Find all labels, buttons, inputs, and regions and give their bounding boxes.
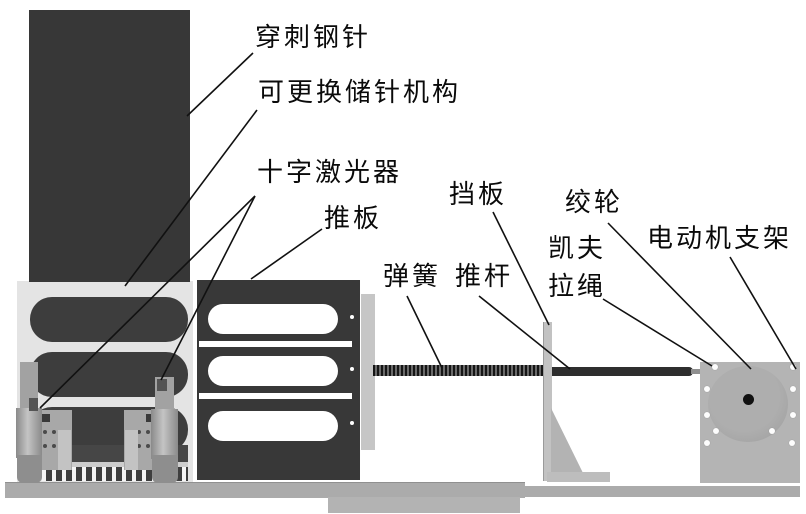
figure-canvas: 穿刺钢针 可更换储针机构 十字激光器 推板 挡板 弹簧 推杆 绞轮 凯夫 拉绳 … (0, 0, 806, 514)
label-spring: 弹簧 (383, 264, 441, 290)
label-push-rod: 推杆 (455, 264, 513, 290)
label-kevlar-line1: 凯夫 (548, 230, 606, 268)
label-winch: 绞轮 (565, 190, 623, 216)
leader-spring (407, 296, 442, 368)
leader-laser-left (40, 196, 255, 408)
label-motor-bracket: 电动机支架 (647, 226, 792, 252)
label-puncture-needle: 穿刺钢针 (255, 25, 371, 51)
label-kevlar-rope: 凯夫 拉绳 (548, 230, 606, 306)
leader-motor-bracket (730, 257, 796, 369)
leader-push-plate (251, 229, 322, 279)
leader-laser-right (161, 196, 255, 380)
label-baffle: 挡板 (449, 182, 507, 208)
label-cross-laser: 十字激光器 (257, 160, 402, 186)
label-kevlar-line2: 拉绳 (548, 268, 606, 306)
leader-kevlar (603, 299, 712, 366)
leader-push-rod (479, 296, 570, 369)
leader-needle (187, 53, 253, 116)
label-push-plate: 推板 (324, 206, 382, 232)
label-needle-magazine: 可更换储针机构 (258, 80, 461, 106)
